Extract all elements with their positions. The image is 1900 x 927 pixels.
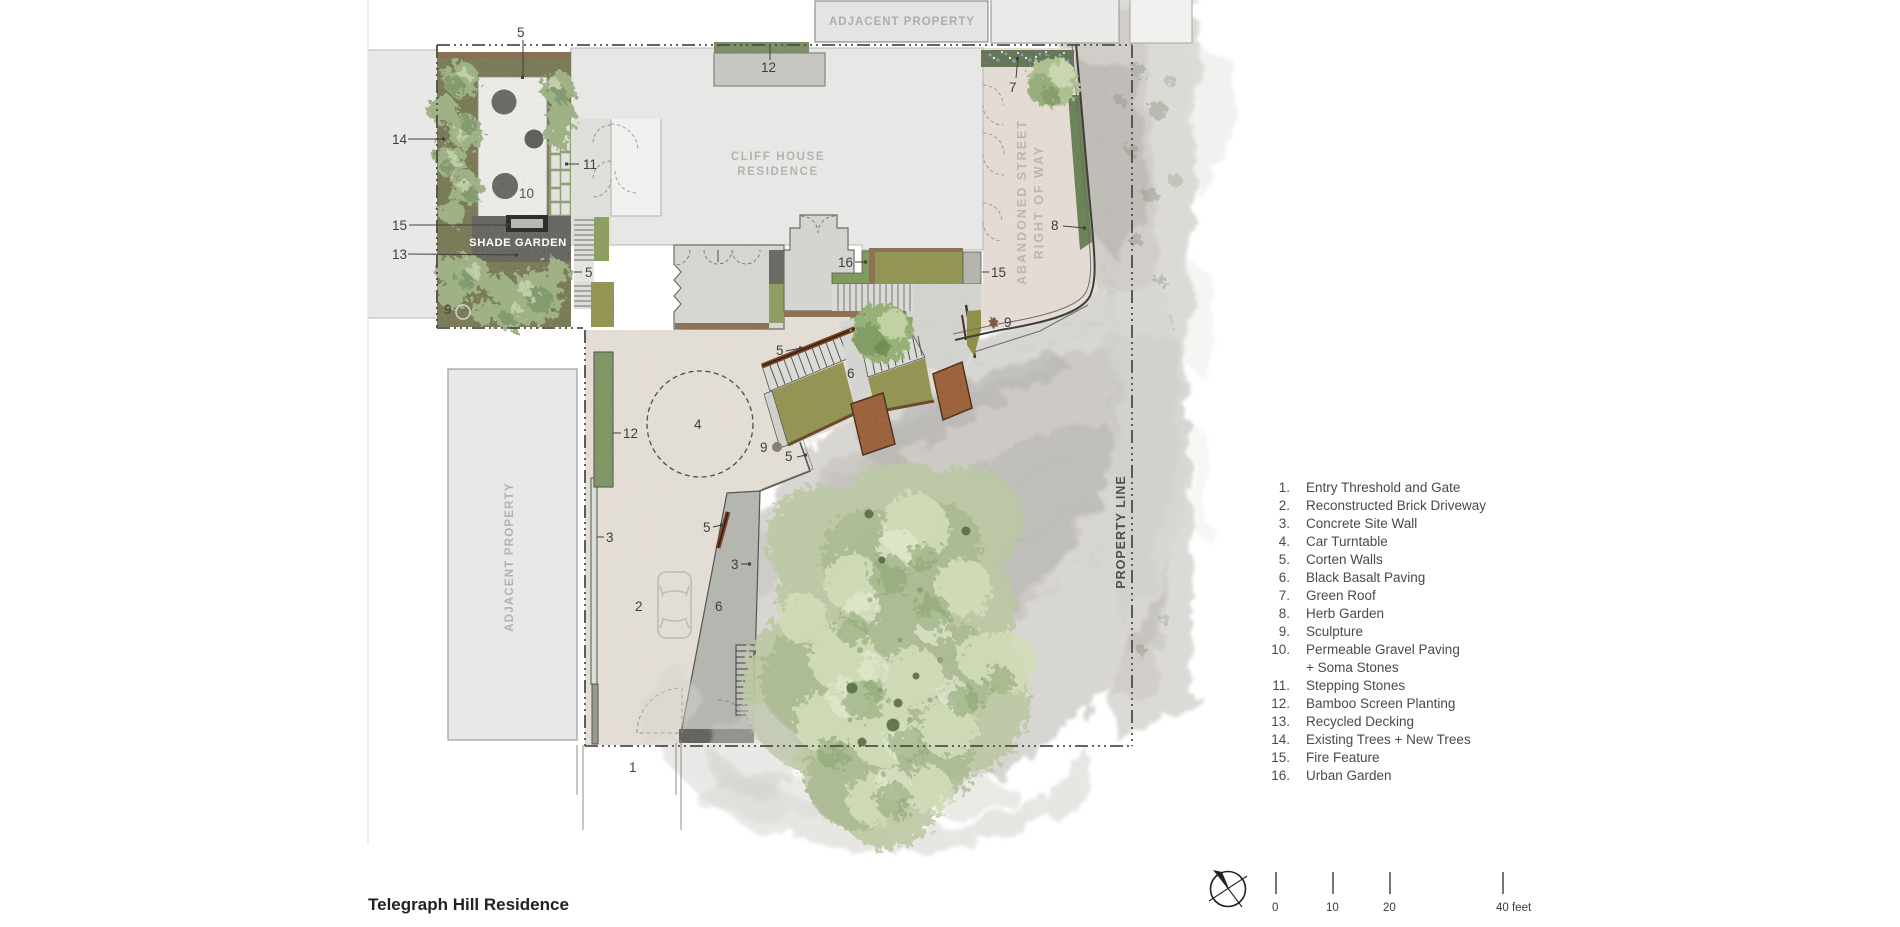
svg-text:Existing Trees + New Trees: Existing Trees + New Trees [1306, 732, 1471, 747]
svg-text:Car Turntable: Car Turntable [1306, 534, 1388, 549]
svg-text:5: 5 [585, 265, 593, 280]
svg-text:Bamboo Screen Planting: Bamboo Screen Planting [1306, 696, 1455, 711]
svg-text:6.: 6. [1279, 570, 1290, 585]
svg-text:5: 5 [776, 343, 784, 358]
svg-text:13: 13 [392, 247, 407, 262]
svg-text:4: 4 [694, 417, 702, 432]
svg-text:11: 11 [583, 157, 597, 172]
svg-text:PROPERTY LINE: PROPERTY LINE [1114, 475, 1128, 588]
svg-text:9: 9 [1004, 315, 1012, 330]
svg-text:15: 15 [991, 265, 1006, 280]
svg-text:ABANDONED STREET: ABANDONED STREET [1015, 119, 1029, 285]
svg-text:14.: 14. [1271, 732, 1290, 747]
svg-text:5.: 5. [1279, 552, 1290, 567]
svg-text:2.: 2. [1279, 498, 1290, 513]
svg-text:SHADE GARDEN: SHADE GARDEN [469, 237, 567, 249]
svg-text:5: 5 [785, 449, 793, 464]
svg-text:1: 1 [629, 760, 637, 775]
svg-text:10.: 10. [1271, 642, 1290, 657]
svg-text:9: 9 [444, 302, 452, 317]
svg-text:14: 14 [392, 132, 408, 147]
svg-text:40 feet: 40 feet [1496, 902, 1532, 914]
svg-text:12: 12 [623, 426, 638, 441]
svg-text:RESIDENCE: RESIDENCE [737, 166, 819, 178]
svg-text:3.: 3. [1279, 516, 1290, 531]
svg-text:ADJACENT PROPERTY: ADJACENT PROPERTY [504, 482, 516, 631]
svg-text:Herb Garden: Herb Garden [1306, 606, 1384, 621]
svg-text:Black Basalt Paving: Black Basalt Paving [1306, 570, 1425, 585]
svg-text:2: 2 [635, 599, 643, 614]
svg-text:9: 9 [760, 440, 768, 455]
svg-text:Fire Feature: Fire Feature [1306, 750, 1380, 765]
svg-text:8.: 8. [1279, 606, 1290, 621]
svg-text:Telegraph Hill Residence: Telegraph Hill Residence [368, 895, 569, 914]
svg-text:Sculpture: Sculpture [1306, 624, 1363, 639]
svg-text:9.: 9. [1279, 624, 1290, 639]
svg-text:ADJACENT PROPERTY: ADJACENT PROPERTY [829, 16, 975, 28]
svg-text:16: 16 [838, 255, 853, 270]
svg-text:4.: 4. [1279, 534, 1290, 549]
svg-text:Green Roof: Green Roof [1306, 588, 1376, 603]
svg-text:8: 8 [1051, 218, 1059, 233]
svg-text:15: 15 [392, 218, 407, 233]
svg-text:Recycled Decking: Recycled Decking [1306, 714, 1414, 729]
svg-text:6: 6 [715, 599, 723, 614]
svg-text:+ Soma Stones: + Soma Stones [1306, 660, 1399, 675]
svg-text:11.: 11. [1272, 678, 1290, 693]
svg-text:Corten Walls: Corten Walls [1306, 552, 1383, 567]
svg-text:5: 5 [703, 520, 711, 535]
svg-text:1.: 1. [1279, 480, 1290, 495]
svg-text:13.: 13. [1271, 714, 1290, 729]
svg-text:7.: 7. [1279, 588, 1290, 603]
svg-text:Stepping Stones: Stepping Stones [1306, 678, 1405, 693]
svg-text:Reconstructed Brick Driveway: Reconstructed Brick Driveway [1306, 498, 1486, 513]
svg-text:10: 10 [1326, 902, 1339, 914]
svg-text:Concrete Site Wall: Concrete Site Wall [1306, 516, 1417, 531]
svg-text:Permeable Gravel Paving: Permeable Gravel Paving [1306, 642, 1460, 657]
svg-text:6: 6 [847, 366, 855, 381]
svg-text:RIGHT OF WAY: RIGHT OF WAY [1032, 145, 1046, 260]
svg-text:0: 0 [1272, 902, 1278, 914]
svg-text:5: 5 [517, 25, 525, 40]
svg-text:20: 20 [1383, 902, 1396, 914]
svg-text:3: 3 [606, 530, 614, 545]
svg-text:Urban Garden: Urban Garden [1306, 768, 1392, 783]
svg-text:7: 7 [1009, 80, 1017, 95]
svg-text:15.: 15. [1271, 750, 1290, 765]
svg-text:Entry Threshold and Gate: Entry Threshold and Gate [1306, 480, 1460, 495]
svg-text:3: 3 [731, 557, 739, 572]
svg-text:12: 12 [761, 60, 776, 75]
svg-text:CLIFF HOUSE: CLIFF HOUSE [731, 151, 825, 163]
svg-text:12.: 12. [1271, 696, 1290, 711]
svg-text:16.: 16. [1271, 768, 1290, 783]
svg-text:10: 10 [519, 186, 534, 201]
